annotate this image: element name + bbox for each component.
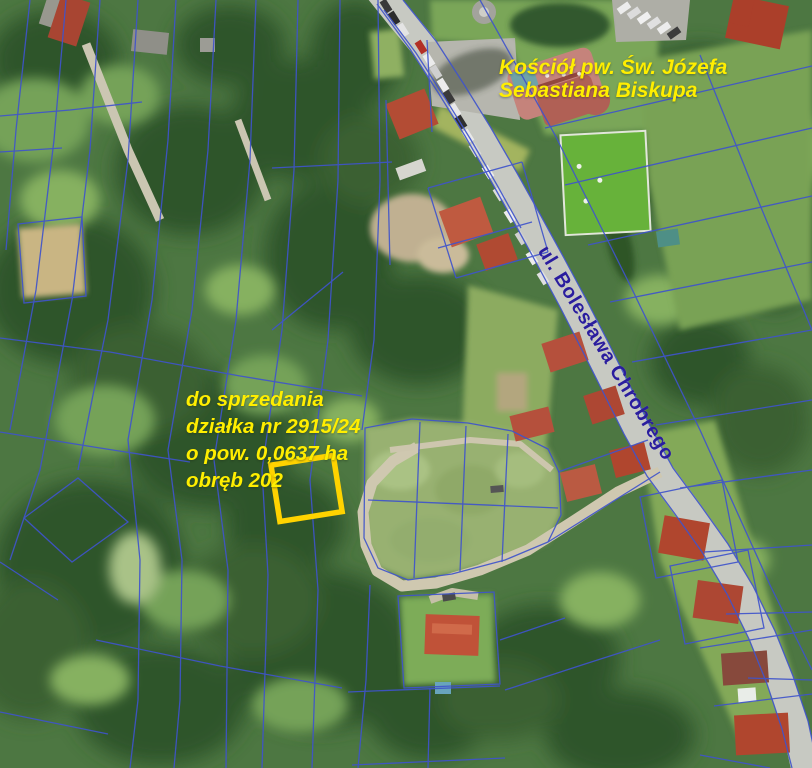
house (658, 515, 710, 560)
church-label-line2: Sebastiana Biskupa (499, 79, 727, 102)
sale-label-line4: obręb 202 (186, 467, 360, 494)
sale-label-line3: o pow. 0,0637 ha (186, 440, 360, 467)
house (734, 713, 790, 756)
sale-offer-label: do sprzedania działka nr 2915/24 o pow. … (186, 386, 360, 494)
sale-label-line2: działka nr 2915/24 (186, 413, 360, 440)
house (721, 650, 769, 685)
house (424, 614, 479, 656)
house (693, 580, 744, 624)
aerial-imagery (0, 0, 812, 768)
aerial-cadastral-map: Kościół pw. Św. Józefa Sebastiana Biskup… (0, 0, 812, 768)
terrace-pool (738, 687, 757, 702)
sale-label-line1: do sprzedania (186, 386, 360, 413)
shed (656, 229, 680, 248)
church-label-line1: Kościół pw. Św. Józefa (499, 56, 727, 79)
church-label: Kościół pw. Św. Józefa Sebastiana Biskup… (499, 56, 727, 102)
